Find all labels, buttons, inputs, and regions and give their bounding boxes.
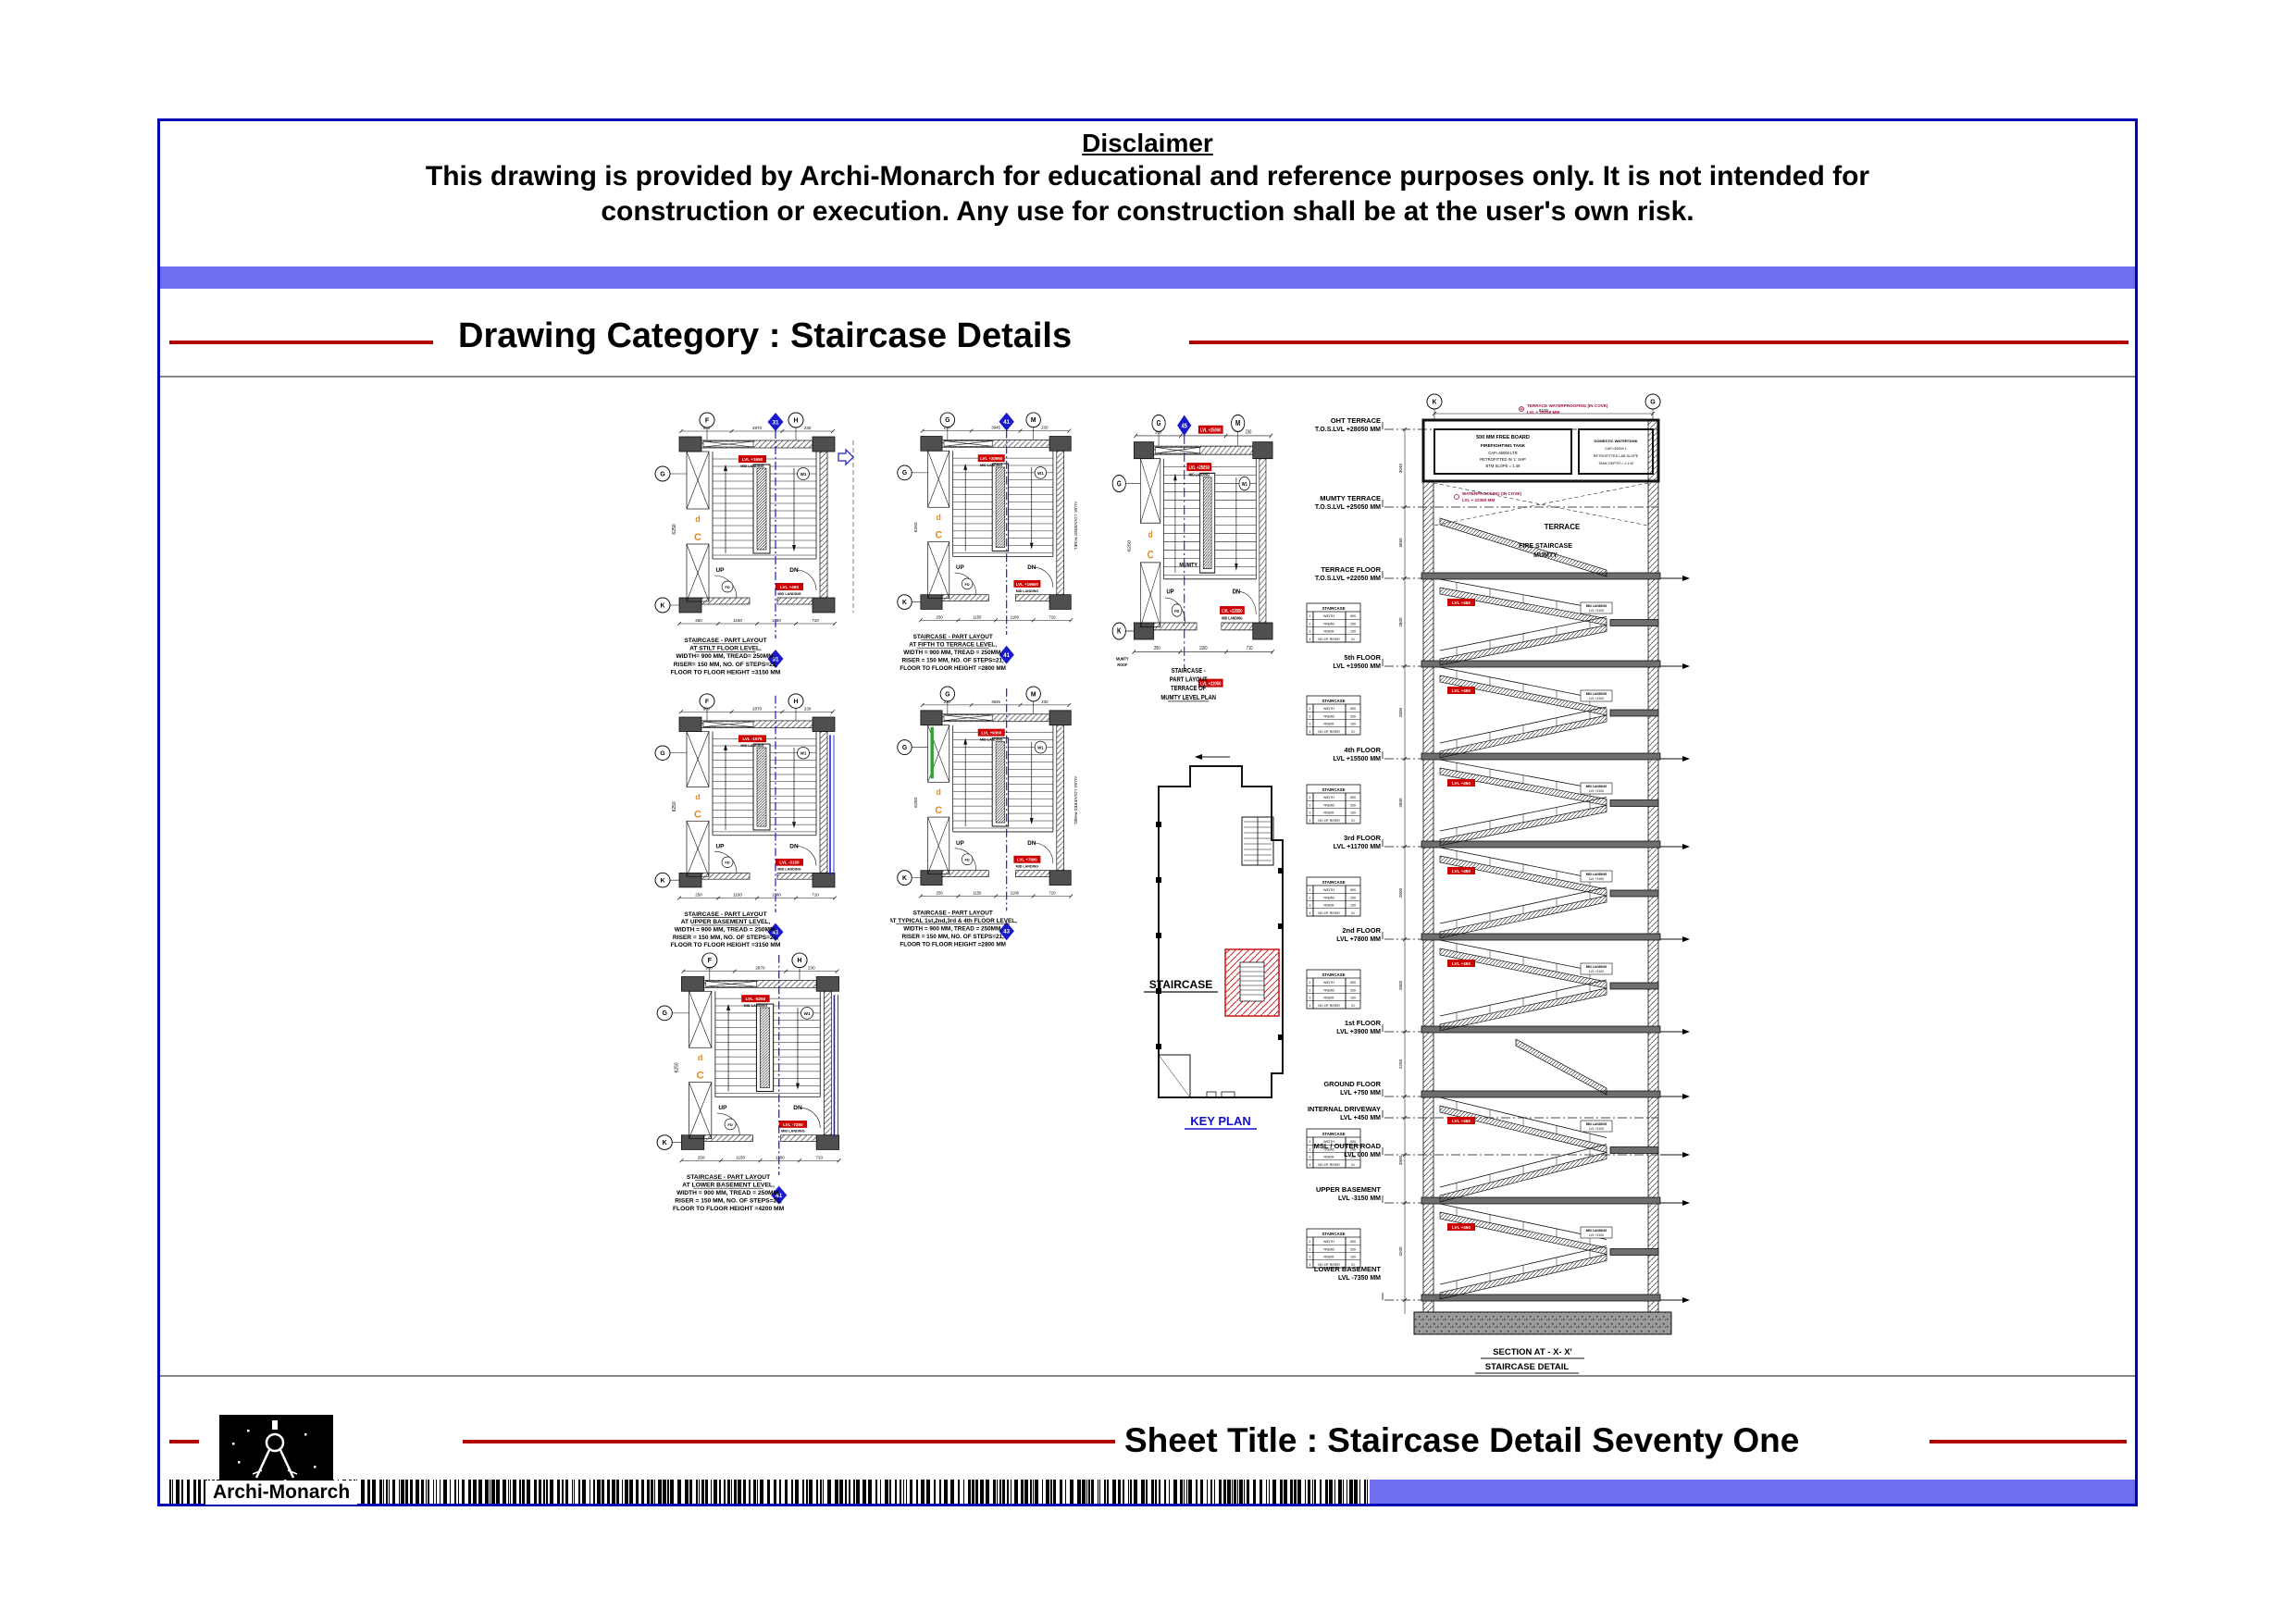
- svg-text:45: 45: [1182, 423, 1188, 430]
- svg-text:MID LANDING: MID LANDING: [1586, 692, 1607, 696]
- svg-text:LVL +7800 MM: LVL +7800 MM: [1336, 936, 1381, 943]
- svg-text:250: 250: [1350, 714, 1356, 718]
- svg-text:3050: 3050: [1398, 538, 1403, 548]
- svg-text:LVL +450: LVL +450: [1452, 961, 1471, 966]
- svg-text:FLOOR TO FLOOR HEIGHT =4200 MM: FLOOR TO FLOOR HEIGHT =4200 MM: [673, 1206, 785, 1212]
- svg-text:250: 250: [1350, 896, 1356, 899]
- svg-text:1: 1: [1309, 707, 1311, 711]
- svg-text:G: G: [1157, 420, 1161, 428]
- svg-text:W1: W1: [1242, 481, 1247, 487]
- svg-text:MID LANDING: MID LANDING: [1586, 873, 1607, 876]
- svg-text:WIDTH: WIDTH: [1323, 1140, 1334, 1144]
- svg-text:RISER: RISER: [1324, 1156, 1334, 1159]
- svg-text:LVL +450: LVL +450: [1452, 688, 1471, 693]
- svg-text:MID LANDING: MID LANDING: [1586, 1122, 1607, 1126]
- svg-text:STAIRCASE: STAIRCASE: [1322, 973, 1345, 977]
- svg-text:900: 900: [1350, 796, 1356, 799]
- svg-text:LVL +7800: LVL +7800: [1017, 858, 1037, 862]
- svg-text:TERRACE FLOOR: TERRACE FLOOR: [1321, 565, 1381, 574]
- svg-text:250: 250: [695, 893, 702, 898]
- svg-text:3: 3: [1309, 630, 1311, 634]
- svg-text:DN: DN: [1233, 588, 1241, 596]
- svg-text:900: 900: [1350, 1240, 1356, 1244]
- svg-text:5th FLOOR: 5th FLOOR: [1344, 653, 1381, 662]
- svg-text:2nd FLOOR: 2nd FLOOR: [1342, 926, 1381, 935]
- svg-text:3: 3: [1309, 997, 1311, 1000]
- svg-text:MID LANDING: MID LANDING: [1188, 473, 1210, 477]
- svg-text:900: 900: [1350, 707, 1356, 711]
- svg-text:NO.OF RISER: NO.OF RISER: [1318, 730, 1340, 734]
- svg-text:LVL +450: LVL +450: [1452, 1119, 1471, 1123]
- svg-text:2: 2: [1309, 896, 1311, 899]
- svg-text:710: 710: [812, 618, 819, 623]
- svg-text:NO.OF RISER: NO.OF RISER: [1318, 1004, 1340, 1008]
- svg-text:21: 21: [1351, 1163, 1355, 1167]
- svg-text:MID LANDING: MID LANDING: [1586, 1229, 1607, 1233]
- svg-text:LVL +9300: LVL +9300: [981, 731, 1001, 736]
- drawing-canvas: 9002870230FHGKdCUPDNW1LVL +1650MID LANDI…: [0, 0, 2296, 1623]
- svg-text:RISER = 150 MM, NO. OF STEPS=2: RISER = 150 MM, NO. OF STEPS=21,: [901, 934, 1004, 940]
- staircase-plan-typical: 2303945230GMGKdCUPDNW1LVL +9300MID LANDI…: [890, 683, 1105, 968]
- svg-text:2800: 2800: [1398, 617, 1403, 627]
- svg-text:4: 4: [1309, 1163, 1311, 1167]
- svg-text:STAIRCASE - PART LAYOUT: STAIRCASE - PART LAYOUT: [684, 911, 766, 918]
- svg-text:MID LANDING: MID LANDING: [1586, 604, 1607, 608]
- svg-text:RISER: RISER: [1324, 1256, 1334, 1259]
- svg-text:LVL +22050: LVL +22050: [1222, 608, 1243, 613]
- svg-text:2870: 2870: [752, 426, 763, 430]
- svg-text:MID LANDING: MID LANDING: [1222, 616, 1243, 620]
- svg-text:LVL -1575: LVL -1575: [742, 737, 763, 741]
- svg-text:TREAD: TREAD: [1323, 803, 1335, 807]
- svg-text:K: K: [1432, 399, 1436, 405]
- svg-text:STAIRCASE DETAIL: STAIRCASE DETAIL: [1485, 1362, 1570, 1372]
- svg-text:WIDTH: WIDTH: [1323, 1240, 1334, 1244]
- svg-text:UP: UP: [715, 567, 725, 574]
- svg-text:C: C: [694, 532, 701, 543]
- svg-text:4: 4: [1309, 638, 1311, 641]
- svg-text:250: 250: [698, 1155, 705, 1159]
- svg-text:21: 21: [1351, 730, 1355, 734]
- svg-text:1150: 1150: [736, 1155, 745, 1159]
- svg-text:FD: FD: [965, 858, 970, 862]
- svg-text:4: 4: [1309, 911, 1311, 915]
- svg-text:710: 710: [812, 893, 819, 898]
- svg-text:230: 230: [1246, 429, 1252, 435]
- svg-text:AT TYPICAL 1st,2nd,3rd & 4th F: AT TYPICAL 1st,2nd,3rd & 4th FLOOR LEVEL…: [890, 918, 1017, 924]
- svg-text:3945: 3945: [991, 426, 1000, 430]
- svg-text:3: 3: [1309, 723, 1311, 726]
- svg-text:MID LANDING: MID LANDING: [980, 464, 1002, 467]
- svg-text:RISER: RISER: [1324, 997, 1334, 1000]
- svg-text:NO.OF RISER: NO.OF RISER: [1318, 1163, 1340, 1167]
- svg-text:TERRACE OF: TERRACE OF: [1171, 686, 1206, 693]
- svg-text:LVL +25050: LVL +25050: [1189, 465, 1210, 470]
- svg-text:STAIRCASE: STAIRCASE: [1322, 606, 1345, 611]
- svg-text:TREAD: TREAD: [1323, 714, 1335, 718]
- brand-name: Archi-Monarch: [205, 1481, 357, 1505]
- svg-text:FLOOR TO FLOOR HEIGHT =3150 MM: FLOOR TO FLOOR HEIGHT =3150 MM: [671, 669, 781, 675]
- svg-text:230: 230: [1041, 700, 1049, 704]
- staircase-plan-lower-basement: 9002870230FHGKdCUPDNW1LVL -5250MID LANDI…: [650, 949, 875, 1232]
- svg-text:TREAD: TREAD: [1323, 896, 1335, 899]
- svg-text:2870: 2870: [755, 966, 765, 971]
- svg-text:21: 21: [1351, 911, 1355, 915]
- svg-text:G: G: [660, 471, 665, 477]
- svg-text:LVL +15500 MM: LVL +15500 MM: [1333, 756, 1381, 762]
- svg-text:1: 1: [1309, 614, 1311, 618]
- svg-text:M: M: [1031, 691, 1036, 698]
- svg-text:1180: 1180: [776, 1155, 785, 1159]
- svg-text:STAIRCASE: STAIRCASE: [1322, 699, 1345, 703]
- svg-text:LVL +450: LVL +450: [1452, 601, 1471, 605]
- svg-text:2: 2: [1309, 1147, 1311, 1151]
- svg-text:TANK DEPTH = 1.4 M: TANK DEPTH = 1.4 M: [1598, 462, 1633, 465]
- svg-text:250: 250: [1350, 622, 1356, 626]
- svg-text:43: 43: [1003, 928, 1010, 935]
- svg-text:FD: FD: [965, 582, 970, 587]
- svg-text:GROUND FLOOR: GROUND FLOOR: [1323, 1080, 1381, 1088]
- svg-text:G: G: [1650, 399, 1656, 405]
- svg-text:DN: DN: [1027, 564, 1036, 571]
- svg-text:2800: 2800: [1398, 798, 1403, 808]
- svg-text:250: 250: [1350, 803, 1356, 807]
- svg-text:AT UPPER BASEMENT LEVEL,: AT UPPER BASEMENT LEVEL,: [681, 919, 771, 925]
- svg-text:STAIRCASE: STAIRCASE: [1322, 880, 1345, 885]
- svg-text:TREAD: TREAD: [1323, 988, 1335, 992]
- svg-text:230: 230: [808, 966, 815, 971]
- svg-text:RISER: RISER: [1324, 904, 1334, 908]
- svg-text:LVL +450: LVL +450: [780, 585, 799, 589]
- staircase-plan-mumty: 2303945230GMGKdCUPDNW1LVL +25050MID LAND…: [1106, 411, 1304, 733]
- svg-text:STAIRCASE: STAIRCASE: [1322, 1232, 1345, 1236]
- svg-text:F: F: [705, 417, 710, 424]
- svg-text:d: d: [937, 513, 941, 522]
- svg-text:LVL +2100: LVL +2100: [1589, 789, 1604, 793]
- key-plan: STAIRCASEKEY PLAN: [1133, 729, 1305, 1133]
- svg-text:WIDTH: WIDTH: [1323, 981, 1334, 985]
- svg-text:2800: 2800: [1398, 887, 1403, 898]
- svg-text:SECTION AT - X- X': SECTION AT - X- X': [1493, 1347, 1572, 1357]
- svg-text:G: G: [1117, 480, 1122, 489]
- svg-text:MID LANDING: MID LANDING: [1586, 965, 1607, 969]
- archi-monarch-logo: [219, 1415, 333, 1487]
- svg-text:WATERPROOFING (IN COVE): WATERPROOFING (IN COVE): [1462, 491, 1521, 496]
- svg-text:F: F: [705, 699, 709, 705]
- svg-text:21: 21: [1351, 638, 1355, 641]
- svg-text:d: d: [698, 1053, 703, 1062]
- svg-text:WIDTH = 900 MM, TREAD = 250MM,: WIDTH = 900 MM, TREAD = 250MM,: [903, 925, 1002, 932]
- svg-text:DN: DN: [789, 843, 799, 849]
- svg-text:G: G: [902, 470, 907, 477]
- svg-text:LVL +450: LVL +450: [1452, 1225, 1471, 1230]
- svg-text:LVL +2100: LVL +2100: [1589, 1233, 1604, 1237]
- svg-text:TREAD: TREAD: [1323, 1247, 1335, 1251]
- svg-text:2250: 2250: [1398, 1059, 1403, 1069]
- svg-text:150: 150: [1350, 1156, 1356, 1159]
- svg-text:2: 2: [1309, 622, 1311, 626]
- svg-text:31: 31: [772, 419, 779, 426]
- svg-text:150: 150: [1350, 997, 1356, 1000]
- svg-text:3: 3: [1309, 904, 1311, 908]
- svg-text:ALUM. LOUVERED PANEL: ALUM. LOUVERED PANEL: [1074, 502, 1078, 551]
- svg-text:21: 21: [1351, 1263, 1355, 1267]
- svg-text:KEY PLAN: KEY PLAN: [1190, 1114, 1251, 1128]
- svg-text:900: 900: [1350, 888, 1356, 892]
- svg-text:710: 710: [815, 1155, 823, 1159]
- svg-text:150: 150: [1350, 904, 1356, 908]
- svg-text:6250: 6250: [672, 801, 677, 811]
- svg-text:3040: 3040: [1398, 463, 1403, 473]
- svg-text:MID LANDING: MID LANDING: [980, 738, 1003, 742]
- svg-text:6250: 6250: [672, 524, 677, 534]
- footer-rule-dash: [169, 1440, 199, 1443]
- svg-text:2: 2: [1309, 988, 1311, 992]
- svg-text:WIDTH= 900 MM, TREAD= 250MM,: WIDTH= 900 MM, TREAD= 250MM,: [676, 653, 776, 660]
- svg-text:K: K: [902, 600, 907, 606]
- svg-text:LVL -3150 MM: LVL -3150 MM: [1338, 1196, 1381, 1202]
- svg-text:230: 230: [1041, 426, 1049, 430]
- svg-text:230: 230: [804, 706, 812, 711]
- staircase-section-drawing: KG8100OHT TERRACET.O.S.LVL +28050 MMMUMT…: [1285, 389, 1699, 1381]
- svg-text:LVL +19500: LVL +19500: [1016, 582, 1039, 587]
- svg-text:T.O.S.LVL +28050 MM: T.O.S.LVL +28050 MM: [1315, 427, 1381, 433]
- svg-text:WIDTH: WIDTH: [1323, 614, 1334, 618]
- svg-text:RISER: RISER: [1324, 723, 1334, 726]
- svg-text:DOMESTIC WATERTANK: DOMESTIC WATERTANK: [1594, 439, 1637, 443]
- svg-text:MUMTY TERRACE: MUMTY TERRACE: [1320, 494, 1381, 502]
- svg-text:LVL -5250: LVL -5250: [746, 997, 766, 1001]
- svg-text:G: G: [662, 1010, 666, 1017]
- svg-text:C: C: [697, 1071, 704, 1082]
- svg-text:MID LANDING: MID LANDING: [740, 465, 763, 468]
- svg-text:3: 3: [1309, 1256, 1311, 1259]
- svg-text:STAIRCASE - PART LAYOUT: STAIRCASE - PART LAYOUT: [913, 634, 993, 640]
- svg-text:STAIRCASE: STAIRCASE: [1322, 787, 1345, 792]
- svg-text:FLOOR TO FLOOR HEIGHT =2800 MM: FLOOR TO FLOOR HEIGHT =2800 MM: [900, 941, 1006, 948]
- svg-text:WIDTH: WIDTH: [1323, 707, 1334, 711]
- svg-text:G: G: [945, 691, 949, 698]
- svg-text:LVL +2100: LVL +2100: [1589, 1127, 1604, 1131]
- svg-text:LVL +11700 MM: LVL +11700 MM: [1334, 844, 1381, 850]
- svg-text:TERRACE: TERRACE: [1545, 523, 1581, 531]
- svg-text:K: K: [663, 1140, 667, 1146]
- svg-text:1st FLOOR: 1st FLOOR: [1345, 1019, 1382, 1027]
- svg-text:LVL +2100: LVL +2100: [1589, 970, 1604, 973]
- svg-text:H: H: [797, 958, 801, 964]
- svg-text:4: 4: [1309, 730, 1311, 734]
- svg-text:4: 4: [1309, 819, 1311, 823]
- svg-text:d: d: [937, 787, 941, 797]
- svg-text:K: K: [1117, 627, 1122, 636]
- svg-text:250: 250: [695, 618, 702, 623]
- svg-text:250: 250: [1350, 988, 1356, 992]
- svg-text:G: G: [660, 750, 664, 757]
- svg-text:MID LANDING: MID LANDING: [1016, 865, 1039, 869]
- svg-text:T.O.S.LVL +25050 MM: T.O.S.LVL +25050 MM: [1315, 504, 1381, 511]
- svg-text:W1: W1: [804, 1011, 811, 1016]
- svg-text:710: 710: [1247, 646, 1253, 651]
- svg-text:LVL -7350 MM: LVL -7350 MM: [1338, 1275, 1381, 1282]
- svg-text:C: C: [935, 805, 942, 816]
- svg-text:2800: 2800: [1398, 980, 1403, 990]
- svg-text:6250: 6250: [913, 522, 919, 532]
- svg-text:21: 21: [1351, 1004, 1355, 1008]
- svg-text:AT LOWER BASEMENT LEVEL,: AT LOWER BASEMENT LEVEL,: [682, 1182, 775, 1188]
- svg-text:FD: FD: [727, 1122, 733, 1127]
- svg-text:FD: FD: [725, 861, 729, 865]
- svg-text:WIDTH: WIDTH: [1323, 888, 1334, 892]
- svg-text:MUMTY LEVEL PLAN: MUMTY LEVEL PLAN: [1160, 694, 1216, 701]
- svg-text:250: 250: [937, 890, 944, 895]
- svg-text:3: 3: [1309, 1156, 1311, 1159]
- svg-text:MUMTY: MUMTY: [1179, 562, 1198, 569]
- compass-icon: [219, 1415, 333, 1487]
- svg-text:900: 900: [1350, 1140, 1356, 1144]
- svg-text:RISER= 150 MM, NO. OF STEPS=21: RISER= 150 MM, NO. OF STEPS=21,: [674, 662, 778, 668]
- svg-text:FLOOR TO FLOOR HEIGHT =3150 MM: FLOOR TO FLOOR HEIGHT =3150 MM: [671, 942, 781, 948]
- svg-text:NO.OF RISER: NO.OF RISER: [1318, 638, 1340, 641]
- svg-text:1150: 1150: [973, 890, 982, 895]
- svg-text:T.O.S.LVL +22050 MM: T.O.S.LVL +22050 MM: [1315, 576, 1381, 582]
- svg-text:FD: FD: [1174, 608, 1179, 613]
- svg-text:4: 4: [1309, 1004, 1311, 1008]
- svg-text:PART LAYOUT: PART LAYOUT: [1170, 676, 1209, 684]
- svg-text:WIDTH = 900 MM, TREAD = 250MM,: WIDTH = 900 MM, TREAD = 250MM,: [676, 1190, 780, 1196]
- svg-text:710: 710: [1049, 890, 1056, 895]
- svg-text:CAP=30000 L: CAP=30000 L: [1605, 447, 1627, 451]
- svg-text:LVL +2100: LVL +2100: [1589, 609, 1604, 613]
- svg-text:710: 710: [1049, 614, 1056, 619]
- svg-text:W1: W1: [800, 472, 807, 477]
- svg-text:d: d: [1148, 529, 1153, 539]
- svg-text:AT FIFTH TO TERRACE LEVEL,: AT FIFTH TO TERRACE LEVEL,: [909, 641, 997, 648]
- svg-text:FD: FD: [725, 585, 729, 589]
- svg-text:1150: 1150: [733, 618, 742, 623]
- svg-text:4200: 4200: [1398, 1246, 1403, 1257]
- svg-text:UPPER BASEMENT: UPPER BASEMENT: [1316, 1185, 1381, 1194]
- svg-text:C: C: [694, 810, 701, 821]
- svg-text:TREAD: TREAD: [1323, 1147, 1335, 1151]
- svg-text:RISER: RISER: [1324, 811, 1334, 815]
- svg-text:WIDTH = 900 MM, TREAD = 250MM,: WIDTH = 900 MM, TREAD = 250MM,: [903, 650, 1002, 656]
- svg-text:LVL +1650: LVL +1650: [742, 457, 763, 462]
- svg-text:150: 150: [1350, 723, 1356, 726]
- svg-text:LVL +2100: LVL +2100: [1589, 877, 1604, 881]
- svg-text:900: 900: [1350, 981, 1356, 985]
- svg-text:4: 4: [1309, 1263, 1311, 1267]
- svg-text:LVL +2100: LVL +2100: [1589, 697, 1604, 700]
- svg-text:INTERNAL DRIVEWAY: INTERNAL DRIVEWAY: [1308, 1105, 1381, 1113]
- staircase-plan-fifth-terrace: 2303945230GMGKdCUPDNW1LVL +20950MID LAND…: [890, 409, 1105, 691]
- svg-text:1: 1: [1309, 1240, 1311, 1244]
- svg-text:1150: 1150: [1199, 646, 1208, 651]
- svg-text:K: K: [660, 878, 664, 885]
- svg-text:MID LANDING: MID LANDING: [781, 1130, 805, 1134]
- svg-text:W1: W1: [800, 751, 807, 756]
- svg-text:K: K: [902, 875, 907, 882]
- content-divider-bottom: [160, 1375, 2135, 1377]
- svg-text:G: G: [945, 417, 949, 424]
- svg-text:1: 1: [1309, 888, 1311, 892]
- svg-text:NO.OF RISER: NO.OF RISER: [1318, 911, 1340, 915]
- svg-text:LVL + 22350 MM: LVL + 22350 MM: [1462, 498, 1495, 502]
- svg-text:2: 2: [1309, 714, 1311, 718]
- svg-text:K: K: [660, 602, 664, 609]
- svg-text:MID LANDING: MID LANDING: [1016, 589, 1038, 593]
- svg-text:LVL +450 MM: LVL +450 MM: [1340, 1115, 1381, 1121]
- svg-text:1150: 1150: [733, 893, 742, 898]
- svg-text:d: d: [695, 514, 701, 524]
- svg-text:STAIRCASE - PART LAYOUT: STAIRCASE - PART LAYOUT: [913, 910, 993, 916]
- svg-text:UP: UP: [715, 843, 725, 849]
- svg-text:WIDTH = 900 MM, TREAD = 250MM,: WIDTH = 900 MM, TREAD = 250MM,: [675, 927, 777, 934]
- staircase-plan-upper-basement: 9002870230FHGKdCUPDNW1LVL -1575MID LANDI…: [648, 690, 870, 968]
- svg-text:250: 250: [1350, 1247, 1356, 1251]
- svg-text:6250: 6250: [1127, 540, 1132, 552]
- svg-text:RISER = 150 MM, NO. OF STEPS=2: RISER = 150 MM, NO. OF STEPS=21,: [673, 935, 778, 941]
- svg-text:3: 3: [1309, 811, 1311, 815]
- svg-text:W1: W1: [1037, 745, 1044, 750]
- svg-text:LVL -3150: LVL -3150: [779, 861, 800, 865]
- svg-text:MID LANDING: MID LANDING: [777, 868, 800, 872]
- svg-text:1180: 1180: [772, 893, 781, 898]
- svg-text:DN: DN: [793, 1105, 802, 1111]
- svg-text:1: 1: [1309, 796, 1311, 799]
- svg-text:UP: UP: [718, 1105, 727, 1111]
- svg-text:RISER = 150 MM, NO. OF STEPS=2: RISER = 150 MM, NO. OF STEPS=21,: [675, 1197, 782, 1204]
- footer-accent-bar: [1370, 1480, 2135, 1504]
- svg-text:RETROFITTED IN 'L' SHP: RETROFITTED IN 'L' SHP: [1480, 457, 1526, 462]
- drawing-sheet-page: Disclaimer This drawing is provided by A…: [0, 0, 2296, 1623]
- footer-rule-right: [1930, 1440, 2127, 1443]
- svg-text:WIDTH: WIDTH: [1323, 796, 1334, 799]
- svg-text:2870: 2870: [752, 706, 763, 711]
- svg-text:3945: 3945: [991, 700, 1000, 704]
- svg-text:BTM SLOPE = 1:48: BTM SLOPE = 1:48: [1486, 464, 1521, 468]
- svg-text:LVL +3900 MM: LVL +3900 MM: [1336, 1029, 1381, 1035]
- svg-text:1: 1: [1309, 1140, 1311, 1144]
- svg-text:W1: W1: [1037, 471, 1044, 476]
- svg-text:6250: 6250: [674, 1062, 679, 1072]
- svg-text:21: 21: [1351, 819, 1355, 823]
- svg-text:ALUM. LOUVERED PANEL: ALUM. LOUVERED PANEL: [1074, 776, 1078, 825]
- svg-text:NO.OF RISER: NO.OF RISER: [1318, 1263, 1340, 1267]
- svg-text:C: C: [935, 530, 942, 541]
- svg-text:4th FLOOR: 4th FLOOR: [1344, 746, 1381, 754]
- svg-text:ROOF: ROOF: [1117, 663, 1127, 668]
- svg-text:LVL +20950: LVL +20950: [980, 456, 1003, 461]
- svg-text:250: 250: [1154, 646, 1160, 651]
- svg-text:MID LANDING: MID LANDING: [1586, 785, 1607, 788]
- svg-text:AT STILT FLOOR LEVEL,: AT STILT FLOOR LEVEL,: [689, 646, 762, 652]
- svg-text:STAIRCASE - PART LAYOUT: STAIRCASE - PART LAYOUT: [684, 638, 766, 644]
- svg-text:6250: 6250: [913, 797, 919, 807]
- svg-text:900: 900: [1350, 614, 1356, 618]
- svg-text:250: 250: [1350, 1147, 1356, 1151]
- svg-text:STAIRCASE - PART LAYOUT: STAIRCASE - PART LAYOUT: [687, 1174, 770, 1181]
- svg-text:1180: 1180: [1011, 890, 1020, 895]
- svg-text:UP: UP: [956, 564, 964, 571]
- svg-text:DN: DN: [1027, 840, 1036, 847]
- svg-text:1180: 1180: [772, 618, 781, 623]
- svg-text:3900: 3900: [1398, 1155, 1403, 1165]
- svg-text:MID LANDING: MID LANDING: [777, 592, 800, 596]
- svg-text:LVL +750 MM: LVL +750 MM: [1340, 1090, 1381, 1096]
- svg-text:TREAD: TREAD: [1323, 622, 1335, 626]
- svg-text:STAIRCASE -: STAIRCASE -: [1172, 667, 1206, 675]
- svg-text:MID LANDING: MID LANDING: [744, 1004, 768, 1008]
